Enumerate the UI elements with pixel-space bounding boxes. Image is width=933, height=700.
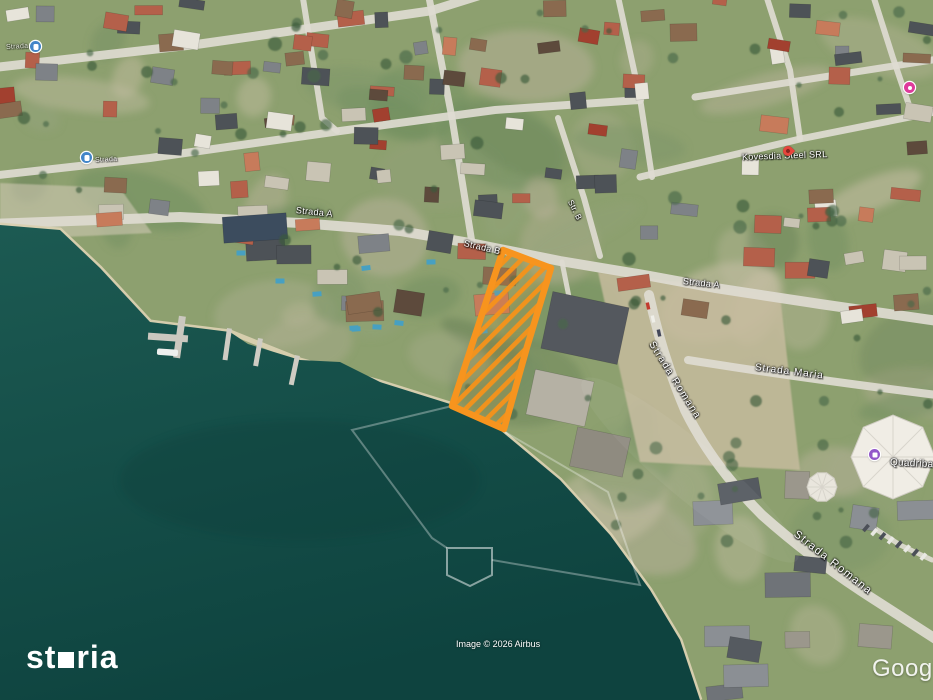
street-label: Strada	[6, 43, 29, 51]
street-label: Quadriba	[890, 457, 933, 470]
satellite-map-canvas[interactable]: StradaStradaStrada AStrada BStr. BStrada…	[0, 0, 933, 700]
bus-stop-icon[interactable]	[30, 41, 41, 52]
bus-stop-icon[interactable]	[81, 152, 92, 163]
lodging-icon[interactable]	[869, 449, 880, 460]
satellite-imagery	[0, 0, 933, 700]
business-pin-icon[interactable]	[783, 146, 793, 156]
street-label: Strada	[95, 156, 118, 164]
shopping-icon[interactable]	[904, 82, 915, 93]
